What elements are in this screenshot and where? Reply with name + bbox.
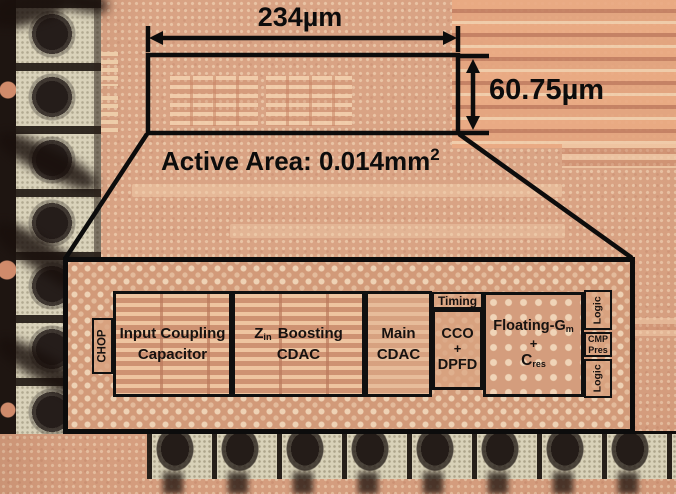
arrowhead-right-icon — [443, 31, 457, 45]
die-micrograph-figure: CHOP Input Coupling Capacitor Zin Boosti… — [0, 0, 676, 494]
height-dimension-label: 60.75µm — [489, 74, 604, 107]
active-area-superscript: 2 — [430, 145, 439, 164]
arrowhead-up-icon — [466, 59, 480, 73]
arrowhead-down-icon — [466, 116, 480, 130]
active-area-label: Active Area: 0.014mm2 — [161, 146, 440, 177]
callout-line-left — [65, 134, 147, 259]
arrowhead-left-icon — [149, 31, 163, 45]
callout-line-right — [459, 134, 632, 258]
active-area-text: Active Area: 0.014mm — [161, 146, 430, 176]
die-outline-rect — [148, 55, 458, 133]
width-dimension-label: 234µm — [210, 2, 390, 33]
